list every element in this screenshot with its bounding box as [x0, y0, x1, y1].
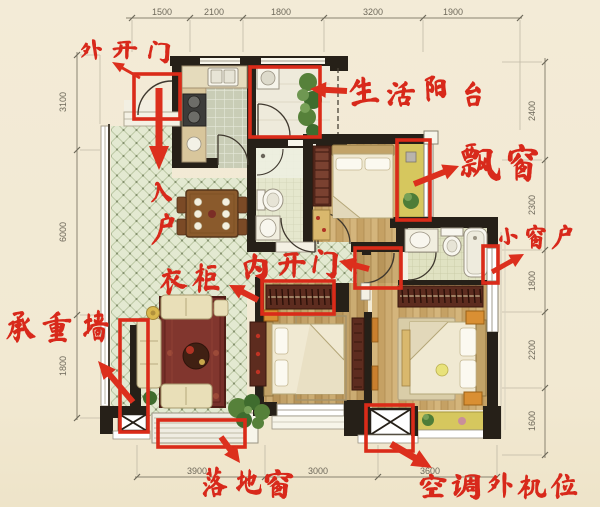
svg-text:2100: 2100	[204, 7, 224, 17]
svg-text:3200: 3200	[363, 7, 383, 17]
svg-text:2200: 2200	[527, 340, 537, 360]
svg-text:1800: 1800	[527, 271, 537, 291]
svg-text:1500: 1500	[152, 7, 172, 17]
svg-text:3100: 3100	[58, 92, 68, 112]
svg-text:1600: 1600	[527, 411, 537, 431]
svg-text:1800: 1800	[58, 356, 68, 376]
svg-text:1900: 1900	[443, 7, 463, 17]
svg-text:1800: 1800	[271, 7, 291, 17]
svg-text:3900: 3900	[187, 466, 207, 476]
svg-text:2300: 2300	[527, 195, 537, 215]
svg-text:6000: 6000	[58, 222, 68, 242]
svg-text:3000: 3000	[308, 466, 328, 476]
svg-text:2400: 2400	[527, 101, 537, 121]
